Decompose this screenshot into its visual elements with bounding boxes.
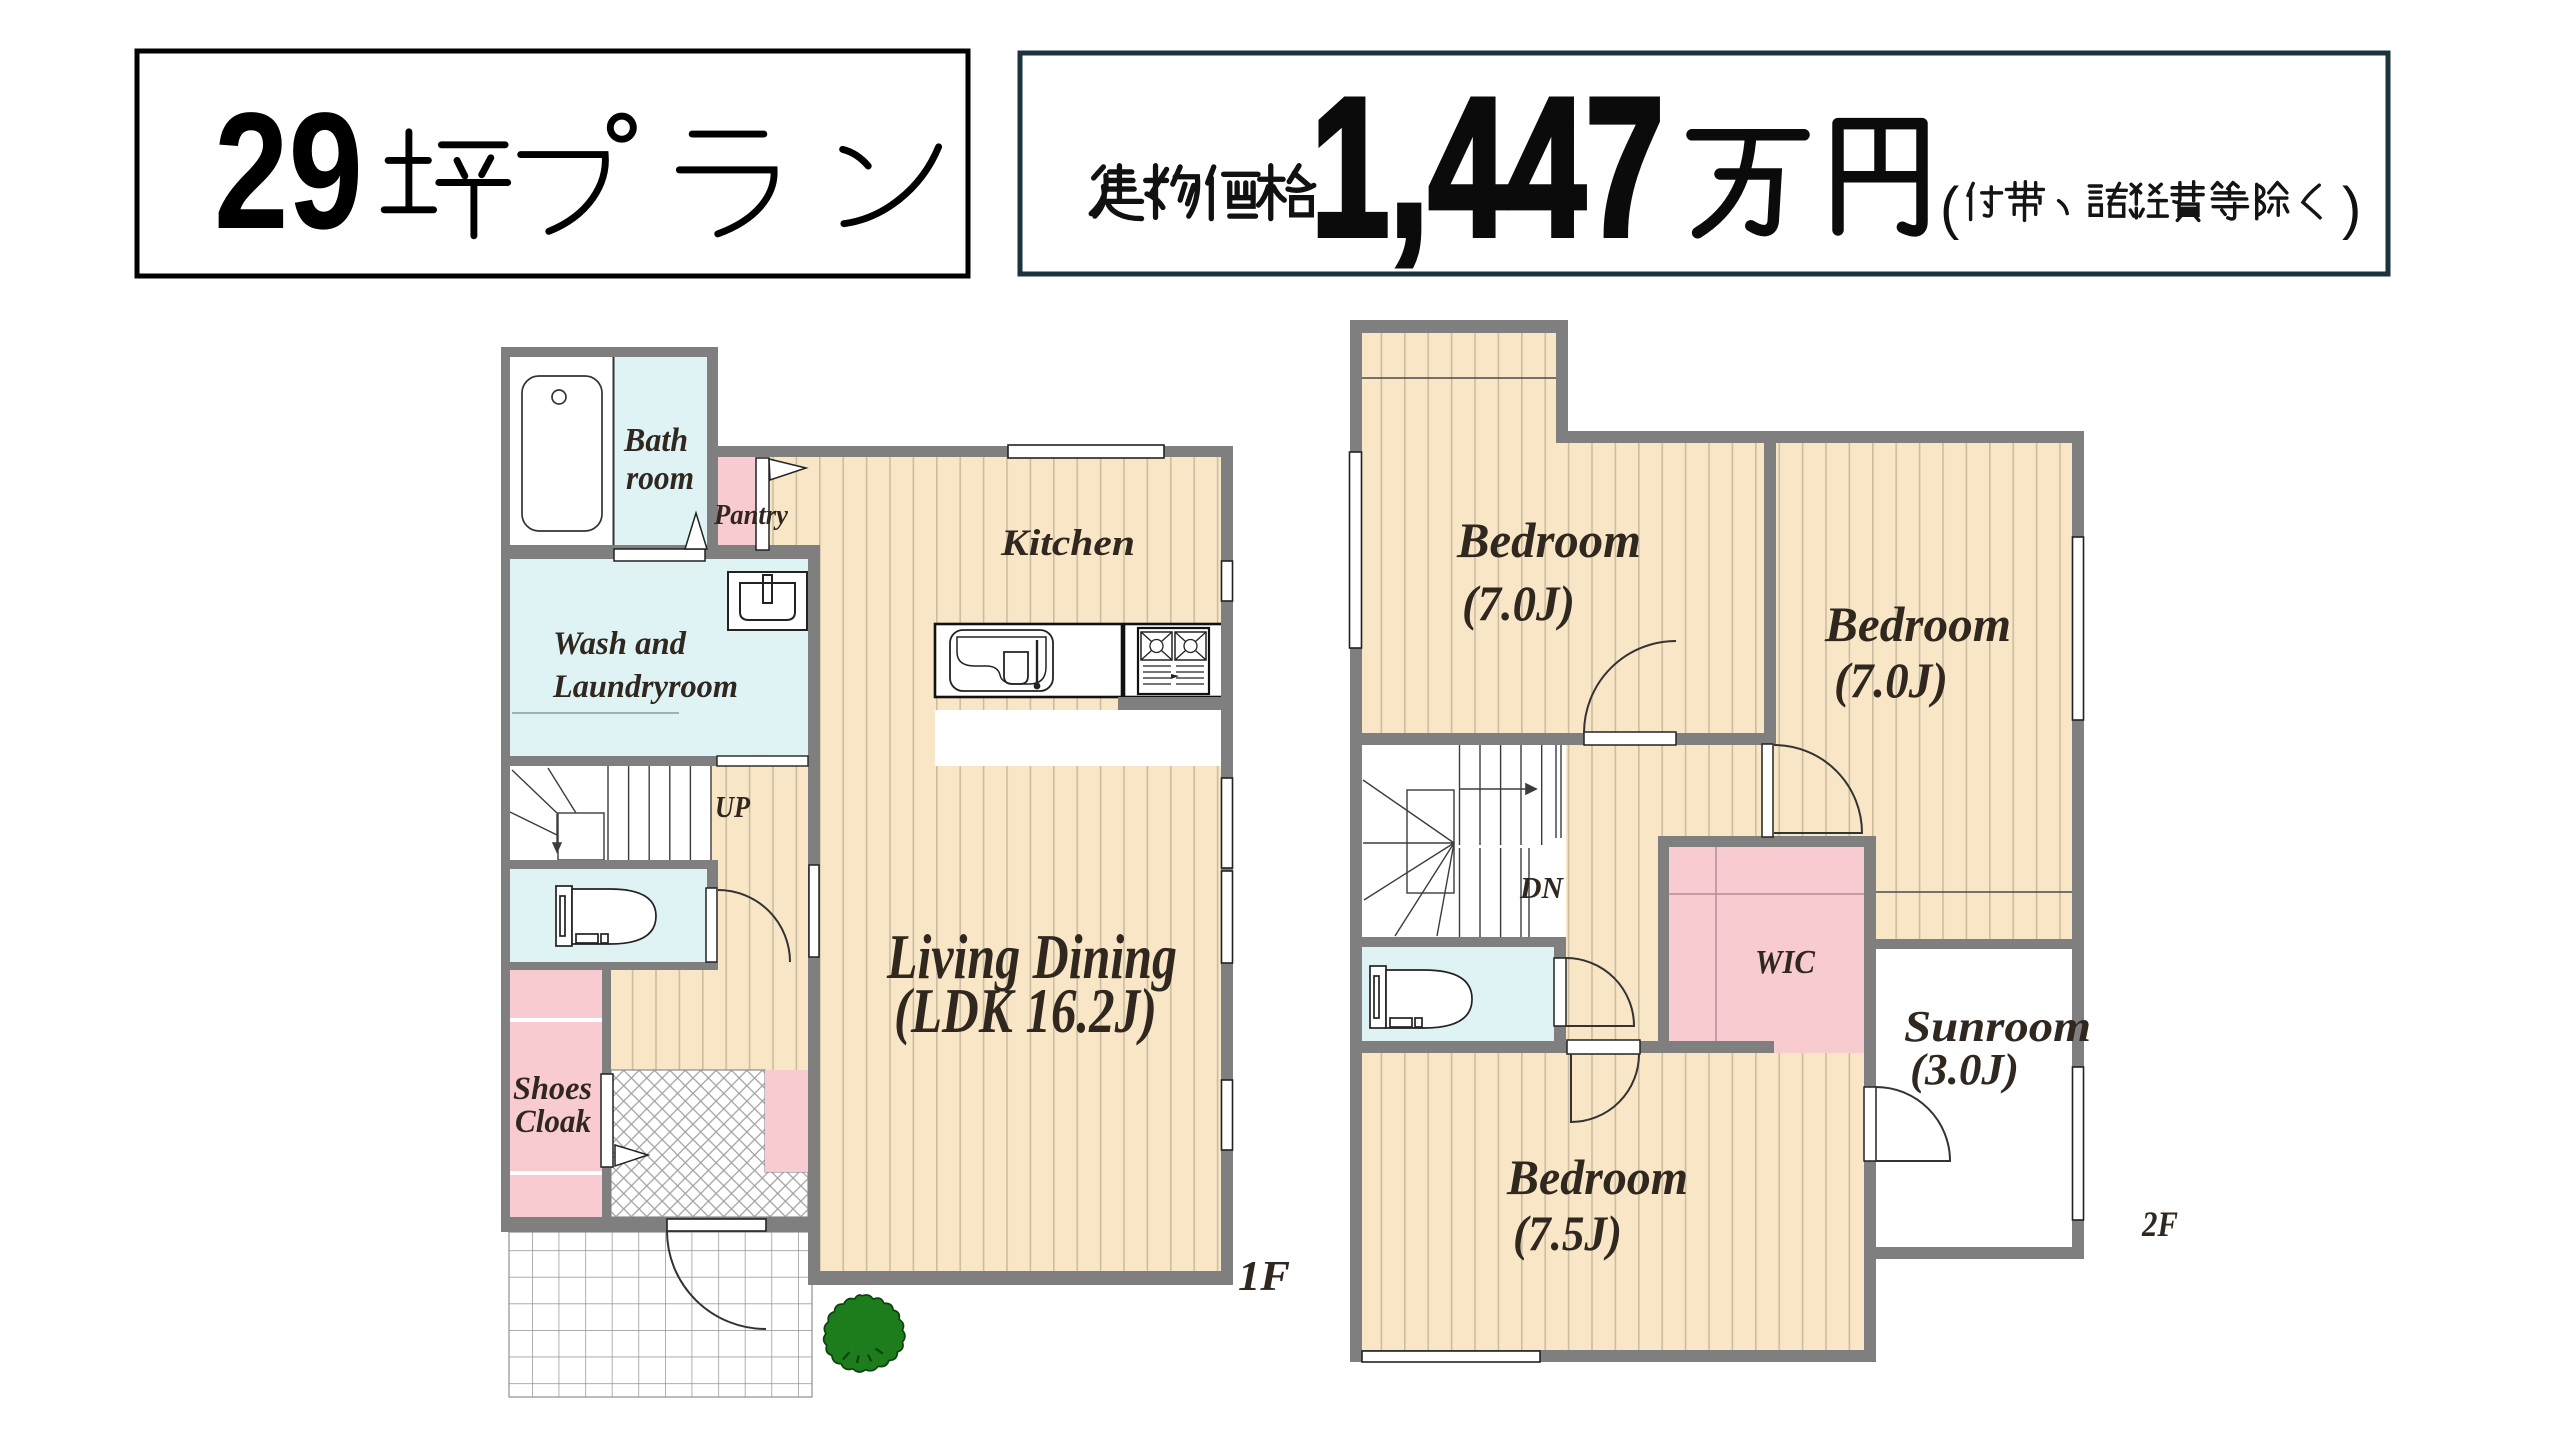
svg-text:1,447: 1,447 xyxy=(1311,57,1664,277)
svg-text:UP: UP xyxy=(715,789,751,824)
svg-text:29: 29 xyxy=(214,79,363,264)
svg-text:Bedroom: Bedroom xyxy=(1456,512,1641,568)
svg-text:(3.0J): (3.0J) xyxy=(1910,1045,2019,1094)
svg-text:(7.5J): (7.5J) xyxy=(1513,1205,1622,1261)
svg-text:Laundryroom: Laundryroom xyxy=(552,669,738,705)
svg-text:(LDK 16.2J): (LDK 16.2J) xyxy=(894,975,1157,1046)
svg-text:Bath: Bath xyxy=(623,422,688,459)
svg-text:Bedroom: Bedroom xyxy=(1824,596,2011,652)
svg-text:Sunroom: Sunroom xyxy=(1904,1002,2091,1051)
svg-text:Pantry: Pantry xyxy=(713,500,788,531)
svg-text:room: room xyxy=(626,460,694,497)
svg-text:2F: 2F xyxy=(2141,1204,2178,1244)
svg-text:DN: DN xyxy=(1519,870,1565,905)
svg-text:): ) xyxy=(2342,176,2361,241)
svg-text:(7.0J): (7.0J) xyxy=(1462,575,1575,631)
svg-text:Shoes: Shoes xyxy=(513,1071,592,1107)
svg-text:Kitchen: Kitchen xyxy=(1000,523,1135,564)
svg-text:(: ( xyxy=(1940,176,1959,241)
svg-text:Bedroom: Bedroom xyxy=(1506,1149,1688,1205)
svg-text:1F: 1F xyxy=(1238,1254,1290,1300)
svg-text:Cloak: Cloak xyxy=(515,1104,591,1140)
svg-text:WIC: WIC xyxy=(1755,944,1815,981)
svg-text:Wash and: Wash and xyxy=(553,626,686,662)
svg-text:(7.0J): (7.0J) xyxy=(1834,652,1948,708)
